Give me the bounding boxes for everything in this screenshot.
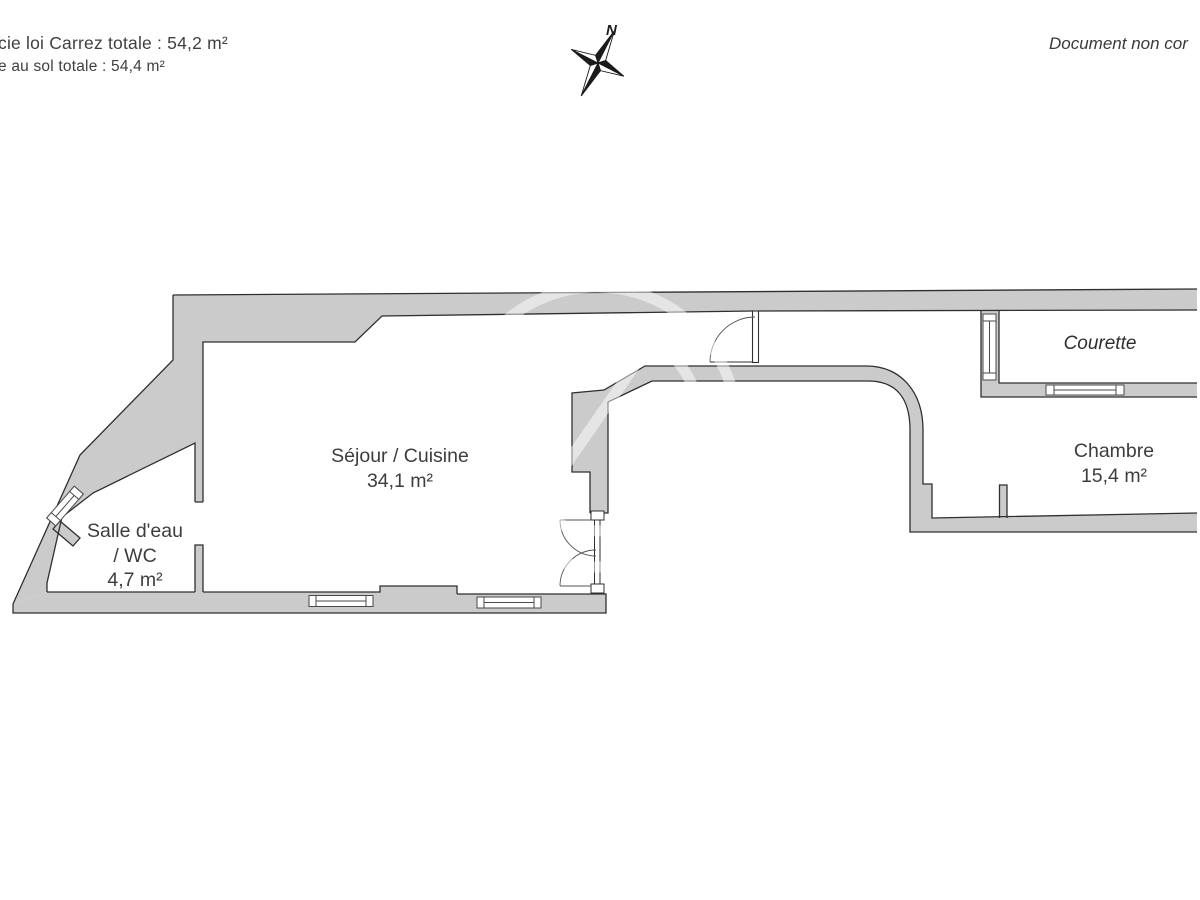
compass-rose — [554, 17, 640, 109]
floor-plan-drawing — [0, 0, 1200, 900]
north-indicator-label: N — [606, 22, 617, 39]
room-name-chambre: Chambre — [1074, 439, 1154, 464]
room-label-chambre: Chambre 15,4 m² — [1074, 439, 1154, 488]
surface-carrez-total: cie loi Carrez totale : 54,2 m² — [0, 33, 228, 54]
room-name-salle-eau-2: / WC — [87, 544, 183, 569]
disclaimer-text: Document non cor — [1049, 34, 1188, 54]
window-symbol-sejour-1 — [309, 596, 373, 607]
surface-floor-total: e au sol totale : 54,4 m² — [0, 58, 165, 76]
room-label-courette: Courette — [1064, 332, 1137, 357]
wall-partition-upper — [195, 443, 203, 502]
room-label-salle-eau: Salle d'eau / WC 4,7 m² — [87, 519, 183, 593]
room-area-chambre: 15,4 m² — [1074, 464, 1154, 489]
wall-partition-lower — [195, 545, 203, 593]
watermark — [457, 287, 737, 567]
wall-stub-chambre — [1000, 485, 1008, 518]
window-symbol-sejour-2 — [477, 597, 541, 608]
window-symbol-chambre — [1046, 385, 1124, 395]
room-area-sejour: 34,1 m² — [331, 469, 469, 494]
room-name-courette: Courette — [1064, 332, 1137, 357]
room-name-sejour: Séjour / Cuisine — [331, 444, 469, 469]
room-label-sejour: Séjour / Cuisine 34,1 m² — [331, 444, 469, 493]
room-name-salle-eau: Salle d'eau — [87, 519, 183, 544]
floor-plan-page: { "header": { "carrez_total": "cie loi C… — [0, 0, 1200, 900]
window-symbol-courette-left — [983, 314, 996, 380]
room-area-salle-eau: 4,7 m² — [87, 568, 183, 593]
